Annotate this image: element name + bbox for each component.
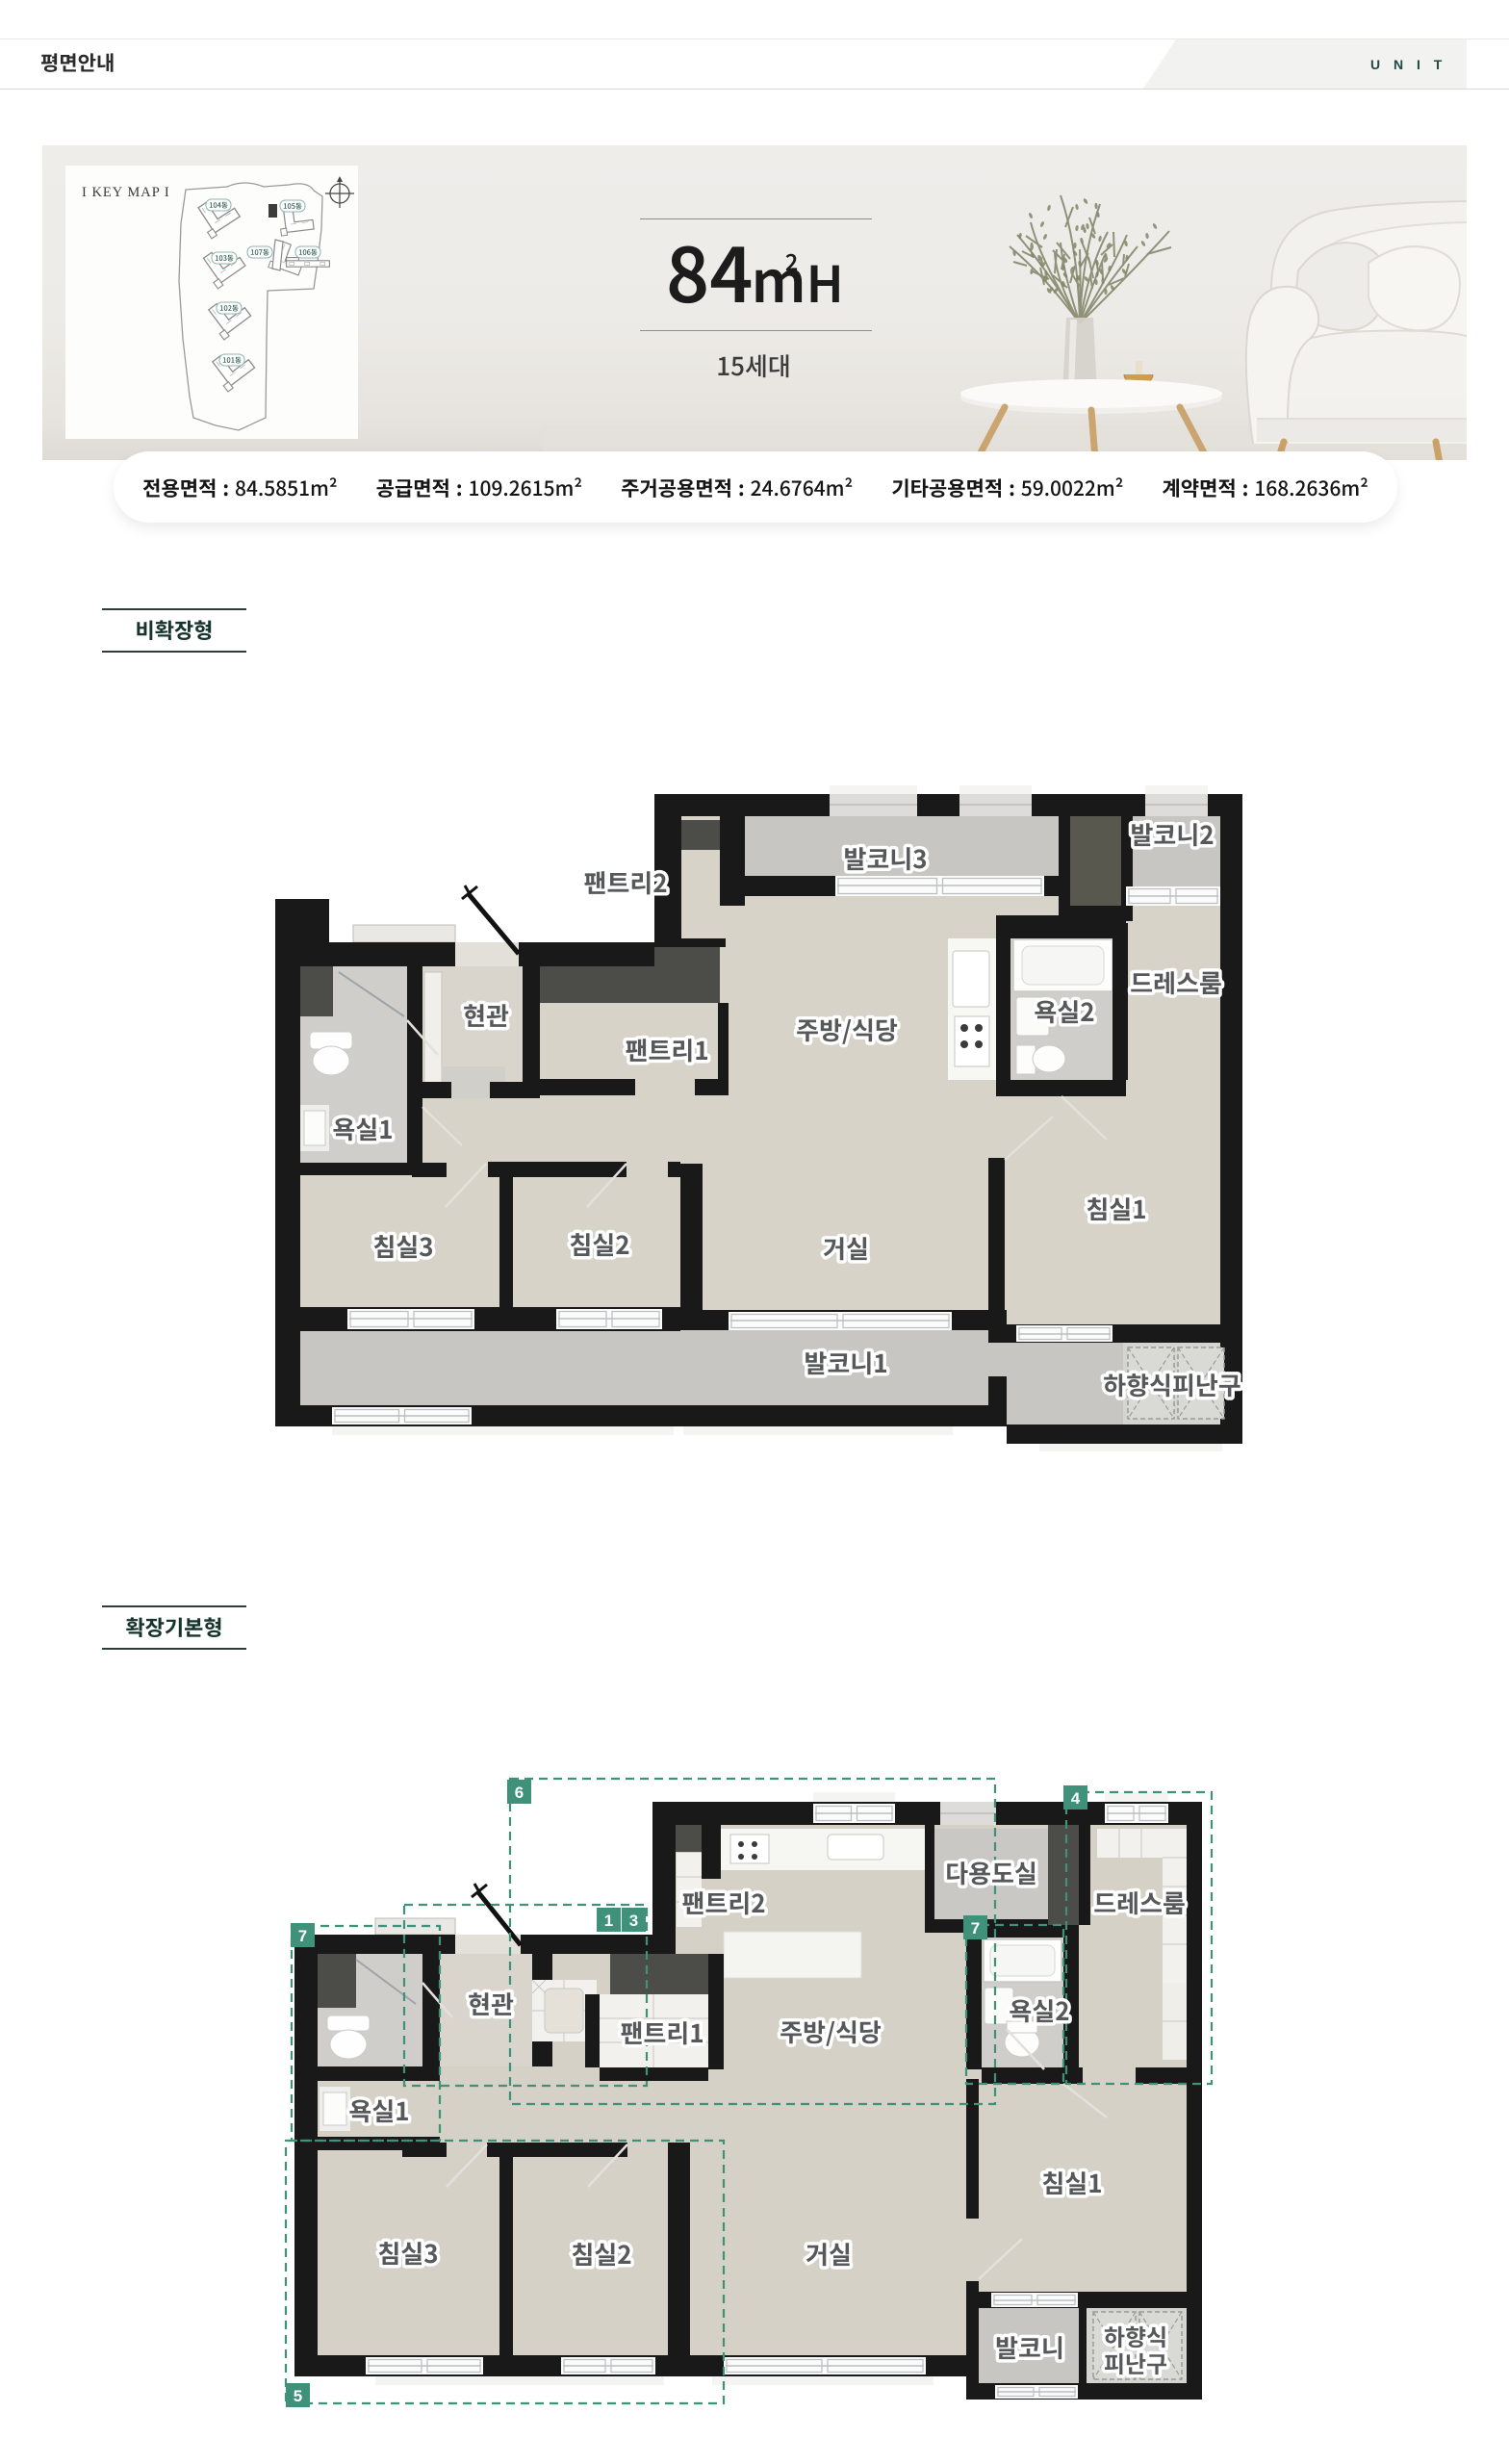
- svg-text:5: 5: [294, 2387, 302, 2405]
- svg-text:7: 7: [971, 1919, 980, 1938]
- svg-text:6: 6: [515, 1784, 524, 1802]
- svg-text:3: 3: [629, 1912, 638, 1930]
- svg-text:1: 1: [604, 1912, 613, 1930]
- svg-text:4: 4: [1071, 1789, 1081, 1808]
- svg-text:7: 7: [298, 1927, 307, 1945]
